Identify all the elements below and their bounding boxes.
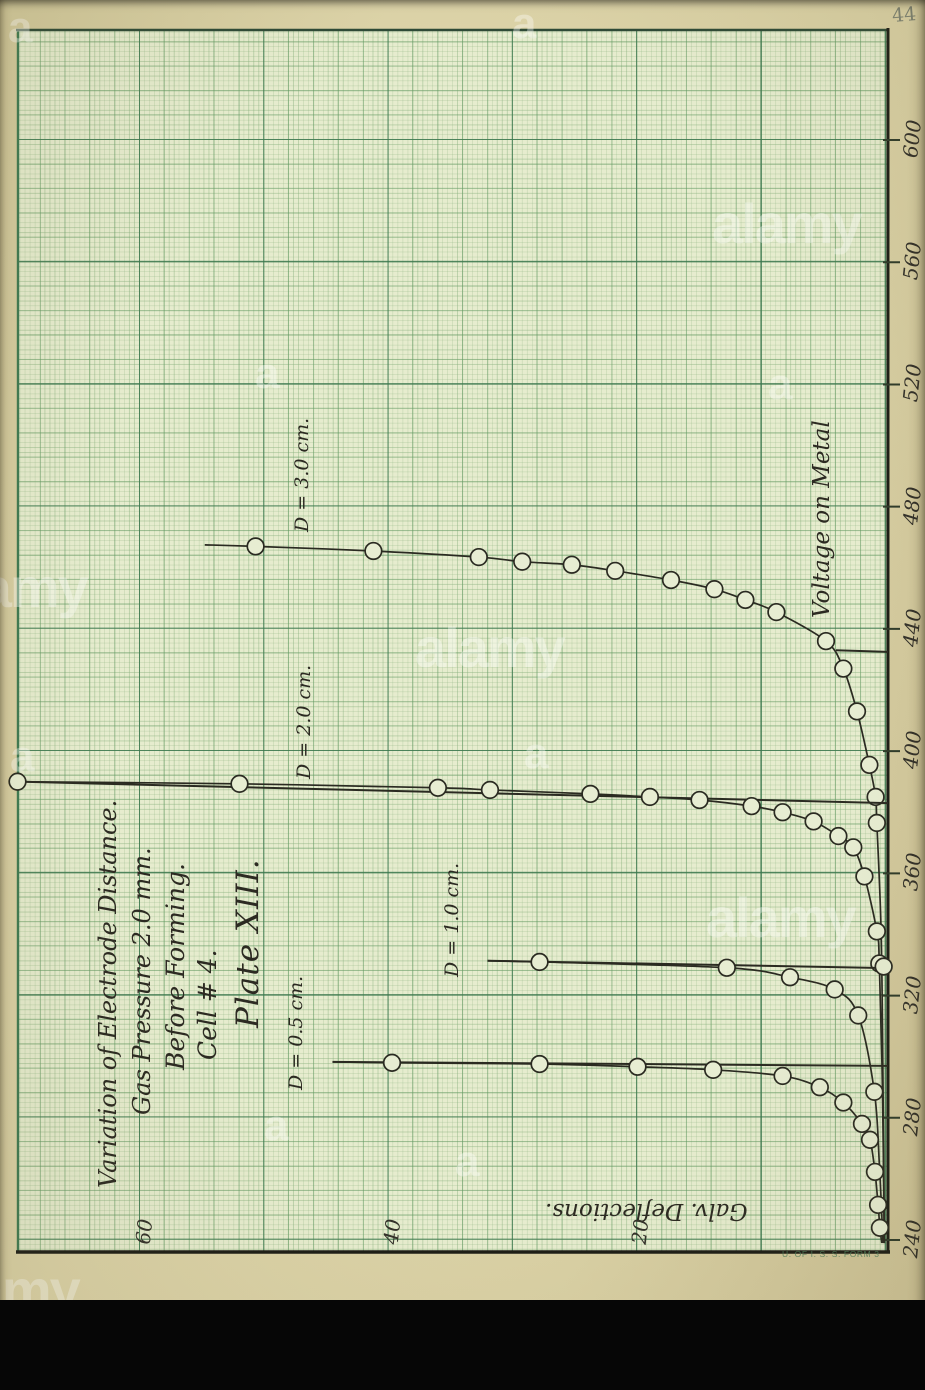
data-point-marker <box>856 868 873 885</box>
deflection-tick-label-60: 60 <box>131 1218 158 1246</box>
voltage-tick-label-320: 320 <box>898 974 925 1014</box>
data-point-marker <box>582 786 599 803</box>
voltage-tick-label-520: 520 <box>898 363 925 403</box>
voltage-tick-label-560: 560 <box>898 241 925 281</box>
paper-form-print: U. OF I. S. S. FORM 3 <box>782 1249 880 1259</box>
deflection-tick-label-40: 40 <box>379 1218 406 1246</box>
data-point-marker <box>768 604 785 621</box>
chart-title-line-1: Variation of Electrode Distance. <box>96 800 120 1188</box>
voltage-tick-label-280: 280 <box>898 1096 925 1136</box>
data-point-marker <box>774 804 791 821</box>
data-point-marker <box>384 1054 401 1071</box>
data-point-marker <box>818 633 835 650</box>
data-point-marker <box>835 1094 852 1111</box>
data-point-marker <box>826 981 843 998</box>
data-point-marker <box>629 1058 646 1075</box>
jump-line-0 <box>836 650 888 652</box>
data-point-marker <box>862 1131 879 1148</box>
voltage-tick-label-440: 440 <box>898 607 925 647</box>
stock-photo-of-chart-plate: Variation of Electrode Distance. Gas Pre… <box>0 0 925 1390</box>
voltage-tick-label-360: 360 <box>898 852 925 892</box>
data-point-marker <box>805 813 822 830</box>
series-label-d2.0: D = 2.0 cm. <box>295 665 314 779</box>
data-point-marker <box>482 782 499 799</box>
data-point-marker <box>430 779 447 796</box>
data-point-marker <box>9 773 26 790</box>
data-point-marker <box>812 1079 829 1096</box>
data-point-marker <box>705 1062 722 1079</box>
chart-title-line-3: Before Forming. <box>163 863 188 1070</box>
voltage-axis-label: Voltage on Metal <box>811 420 834 618</box>
series-label-d0.5: D = 0.5 cm. <box>287 976 306 1090</box>
data-point-marker <box>830 828 847 845</box>
data-point-marker <box>870 1197 887 1214</box>
chart-title-line-2: Gas Pressure 2.0 mm. <box>130 847 154 1115</box>
voltage-tick-label-480: 480 <box>898 485 925 525</box>
plate-number-label: Plate XIII. <box>233 858 264 1028</box>
voltage-tick-label-400: 400 <box>898 730 925 770</box>
data-point-marker <box>531 1056 548 1073</box>
series-label-d3.0: D = 3.0 cm. <box>293 418 312 532</box>
data-point-marker <box>782 969 799 986</box>
data-point-marker <box>872 1219 889 1236</box>
data-point-marker <box>531 954 548 971</box>
series-label-d1.0: D = 1.0 cm. <box>443 863 462 977</box>
data-point-marker <box>849 703 866 720</box>
data-point-marker <box>835 660 852 677</box>
data-point-marker <box>514 553 531 570</box>
data-point-marker <box>869 923 886 940</box>
data-point-marker <box>743 798 760 815</box>
voltage-tick-label-240: 240 <box>898 1219 925 1259</box>
data-point-marker <box>854 1116 871 1133</box>
data-point-marker <box>719 959 736 976</box>
data-point-marker <box>365 543 382 560</box>
page-number: 44 <box>891 3 917 27</box>
data-point-marker <box>607 563 624 580</box>
data-point-marker <box>706 581 723 598</box>
data-point-marker <box>737 592 754 609</box>
data-point-marker <box>774 1068 791 1085</box>
deflection-tick-label-20: 20 <box>627 1218 654 1246</box>
data-point-marker <box>850 1007 867 1024</box>
chart-title-line-4: Cell # 4. <box>195 949 220 1060</box>
data-point-marker <box>869 815 886 832</box>
data-point-marker <box>866 1084 883 1101</box>
voltage-tick-label-600: 600 <box>898 119 925 159</box>
data-point-marker <box>247 538 264 555</box>
data-point-marker <box>471 549 488 566</box>
alamy-watermark-bar: alamy Image ID: 2AN6E5K www.alamy.com <box>0 1300 925 1390</box>
data-point-marker <box>691 792 708 809</box>
data-point-marker <box>875 958 892 975</box>
data-point-marker <box>564 556 581 573</box>
data-point-marker <box>861 757 878 774</box>
data-point-marker <box>867 1164 884 1181</box>
data-point-marker <box>642 789 659 806</box>
data-point-marker <box>663 572 680 589</box>
data-point-marker <box>231 776 248 793</box>
curve-0 <box>205 545 885 1243</box>
data-point-marker <box>845 839 862 856</box>
